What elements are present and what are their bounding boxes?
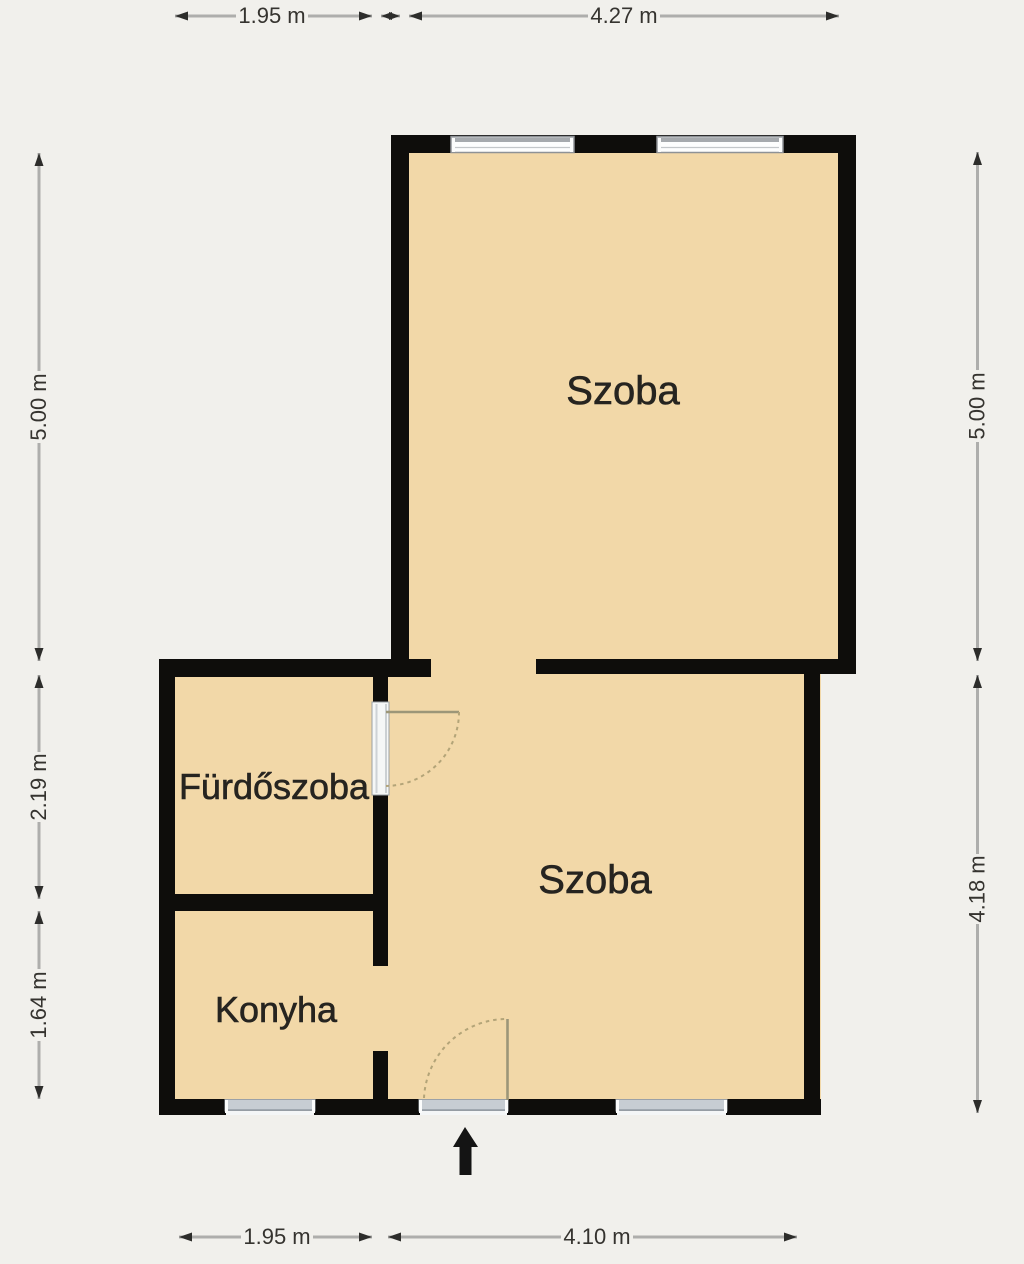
svg-text:5.00 m: 5.00 m (26, 373, 51, 440)
svg-text:Szoba: Szoba (566, 369, 680, 413)
svg-text:1.95 m: 1.95 m (243, 1224, 310, 1249)
svg-text:1.64 m: 1.64 m (26, 971, 51, 1038)
svg-text:1.95 m: 1.95 m (238, 3, 305, 28)
svg-text:2.19 m: 2.19 m (26, 753, 51, 820)
svg-text:4.27 m: 4.27 m (590, 3, 657, 28)
svg-text:4.10 m: 4.10 m (563, 1224, 630, 1249)
svg-text:4.18 m: 4.18 m (965, 855, 990, 922)
svg-text:Szoba: Szoba (538, 858, 652, 902)
svg-text:5.00 m: 5.00 m (965, 372, 990, 439)
svg-text:Fürdőszoba: Fürdőszoba (179, 766, 370, 807)
svg-text:Konyha: Konyha (215, 989, 338, 1030)
